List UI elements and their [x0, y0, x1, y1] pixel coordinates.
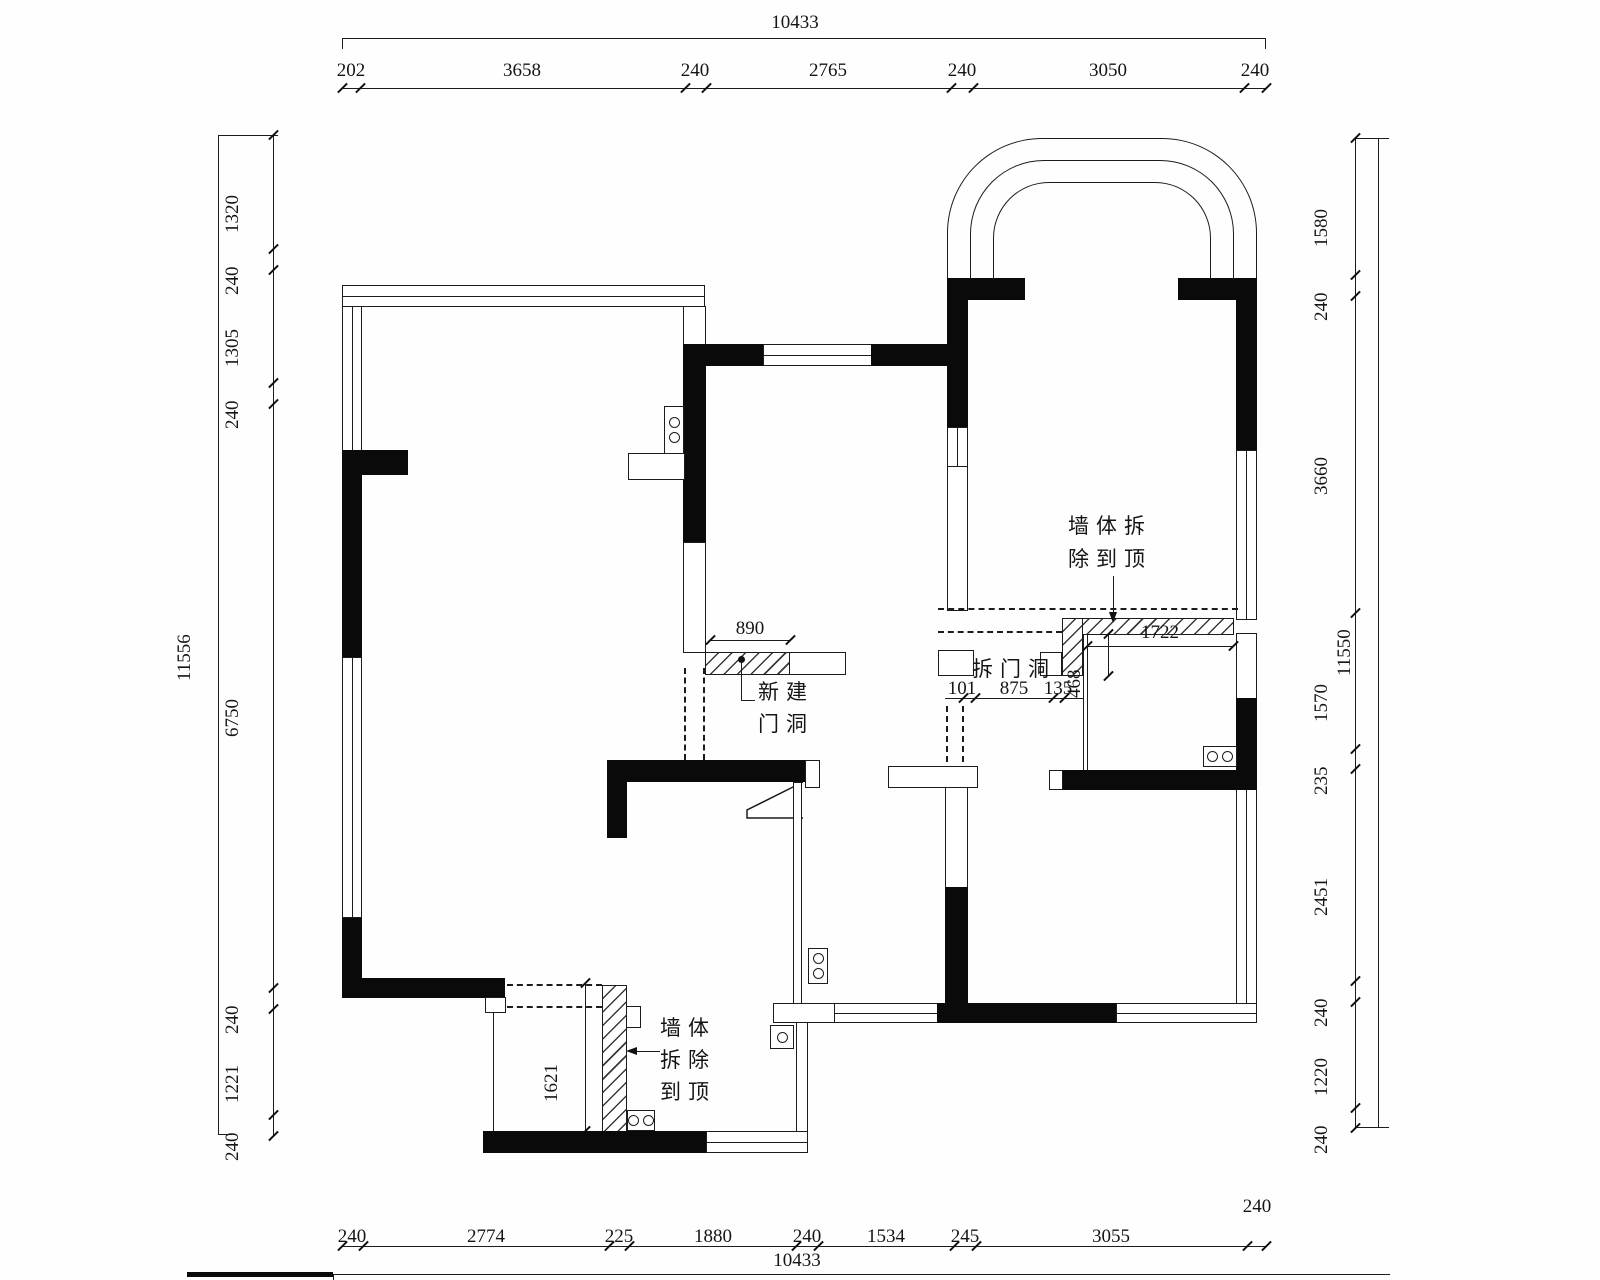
dim-line	[710, 640, 790, 641]
leader-line	[634, 1051, 660, 1052]
dim-top-seg: 240	[681, 60, 710, 82]
dim-right-overall: 11550	[1334, 629, 1356, 676]
leader-line	[741, 700, 755, 701]
sill-box	[773, 1003, 835, 1023]
dim-bottom-seg: 3055	[1092, 1226, 1130, 1248]
dim-right-seg: 1220	[1311, 1058, 1333, 1096]
wall-mid-right	[947, 300, 968, 428]
window-bottom-right	[1116, 1003, 1257, 1023]
removed-wall-dashed	[962, 706, 964, 762]
dim-line	[342, 38, 1266, 39]
wall-partition-thin	[683, 542, 706, 653]
removed-wall-dashed	[684, 668, 686, 760]
hatch-step-notch	[626, 1006, 641, 1028]
wall-bottom-left	[342, 978, 505, 998]
outlet-icon	[1203, 746, 1237, 767]
removed-wall-dashed	[703, 668, 705, 760]
outlet-icon	[627, 1110, 655, 1131]
dim-right-seg: 1570	[1311, 684, 1333, 722]
outlet-icon	[770, 1025, 794, 1049]
dim-line-end	[1265, 38, 1266, 49]
removed-wall-dashed	[938, 608, 1238, 610]
bay-base-left	[947, 278, 1025, 300]
pillar-t-stem-thin	[945, 787, 968, 888]
dim-right-seg: 240	[1311, 293, 1333, 322]
dim-left-seg: 240	[222, 1133, 244, 1162]
door-jamb-piece	[938, 650, 974, 676]
window-top-left	[342, 285, 705, 307]
dim-left-seg: 240	[222, 1006, 244, 1035]
window-left-lower	[342, 657, 362, 918]
wall-end-notch	[485, 997, 506, 1013]
wall-right-thin	[1236, 633, 1257, 699]
dim-line	[342, 1246, 1266, 1247]
dim-right-seg: 2451	[1311, 878, 1333, 916]
dim-left-seg: 240	[222, 267, 244, 296]
bay-window-arc-inner	[993, 182, 1211, 278]
dim-bottom-seg: 1534	[867, 1226, 905, 1248]
wall-center-leg	[607, 782, 627, 838]
removed-wall-dashed	[938, 631, 1062, 633]
dim-left-overall: 11556	[174, 634, 196, 681]
dim-1722: 1722	[1141, 622, 1179, 644]
wall-bottom-mid	[937, 1003, 1117, 1023]
dim-bottom-seg: 1880	[694, 1226, 732, 1248]
dim-door-left: 101	[948, 678, 977, 700]
dim-top-seg: 2765	[809, 60, 847, 82]
annotation-new-door: 门洞	[758, 708, 814, 738]
window-mid-right	[947, 427, 968, 467]
annotation-demolish-top: 墙体拆	[1068, 510, 1152, 540]
pipe-lines	[796, 1022, 808, 1140]
annotation-demolish-bottom: 拆除	[660, 1044, 716, 1074]
leader-line	[1113, 576, 1114, 616]
wall-end-box	[1049, 770, 1063, 790]
counter-box	[628, 453, 685, 480]
annotation-new-door: 新建	[758, 676, 814, 706]
annotation-demolish-top: 除到顶	[1068, 543, 1152, 573]
arrow-down-icon	[1109, 612, 1117, 623]
dim-left-seg: 1320	[222, 195, 244, 233]
removed-wall-dashed	[946, 706, 948, 762]
floorplan-canvas: 10433 202 3658 240 2765 240 3050 240 115…	[0, 0, 1600, 1280]
dim-line-end	[1355, 138, 1389, 139]
demolish-hatch-corner	[1062, 618, 1083, 676]
outlet-icon	[664, 406, 684, 454]
frame-line	[333, 1274, 334, 1280]
dim-right-seg: 240	[1311, 999, 1333, 1028]
dim-1621: 1621	[541, 1064, 563, 1102]
frame-bar	[187, 1272, 333, 1277]
wall-top-middle	[705, 344, 763, 366]
wall-return	[683, 306, 706, 345]
window-left-upper	[342, 306, 362, 451]
dim-line	[342, 88, 1266, 89]
dim-new-door: 890	[736, 618, 765, 640]
dim-bottom-seg: 2774	[467, 1226, 505, 1248]
dim-left-seg: 6750	[222, 699, 244, 737]
dim-bottom-overall: 10433	[773, 1250, 821, 1272]
window-right-upper	[1236, 450, 1257, 620]
removed-wall-dashed	[507, 984, 602, 986]
dim-left-seg: 1305	[222, 329, 244, 367]
dim-line-end	[218, 135, 278, 136]
window-bottom-mid	[834, 1003, 938, 1023]
dim-top-seg: 202	[337, 60, 366, 82]
new-door-hatch	[705, 652, 790, 675]
wall-bath-left	[1083, 634, 1088, 771]
wall-band	[789, 652, 846, 675]
dim-line	[218, 135, 219, 1135]
dim-line-end	[1355, 1127, 1389, 1128]
wall-right-upper	[1236, 300, 1257, 451]
demolish-hatch-wall	[602, 985, 627, 1132]
dim-bottom-seg: 240	[1243, 1196, 1272, 1218]
window-right-lower	[1236, 789, 1257, 1004]
pillar-t-bar	[888, 766, 978, 788]
wall-top-middle2	[871, 344, 947, 366]
bay-base-right	[1178, 278, 1257, 300]
dim-right-seg: 1580	[1311, 209, 1333, 247]
removed-wall-dashed	[507, 1006, 602, 1008]
dim-top-overall: 10433	[771, 12, 819, 34]
dim-line-end	[342, 38, 343, 49]
outlet-icon	[808, 948, 828, 984]
dim-line	[585, 983, 586, 1131]
dim-right-seg: 240	[1311, 1126, 1333, 1155]
wall-below-door	[793, 782, 802, 1004]
wall-bath-bottom	[1062, 770, 1257, 790]
dim-top-seg: 3050	[1089, 60, 1127, 82]
dim-top-seg: 240	[948, 60, 977, 82]
balcony-edge-line	[493, 1012, 494, 1132]
dim-door-width: 875	[1000, 678, 1029, 700]
wall-bottom-balcony	[483, 1131, 707, 1153]
window-bottom-balcony	[706, 1131, 808, 1153]
frame-line	[333, 1274, 1390, 1275]
wall-left	[342, 475, 362, 658]
leader-line	[741, 661, 742, 701]
wall-partition	[683, 344, 706, 543]
wall-left-stub	[342, 450, 408, 475]
wall-mid-right-thin	[947, 466, 968, 611]
dim-left-seg: 1221	[222, 1065, 244, 1103]
annotation-demolish-bottom: 到顶	[660, 1076, 716, 1106]
dim-line	[1108, 634, 1109, 676]
annotation-demolish-bottom: 墙体	[660, 1012, 716, 1042]
dim-left-seg: 240	[222, 401, 244, 430]
dim-right-seg: 235	[1311, 767, 1333, 796]
dim-line	[1378, 138, 1379, 1128]
arrow-left-icon	[626, 1047, 637, 1055]
dim-top-seg: 3658	[503, 60, 541, 82]
dim-right-seg: 3660	[1311, 457, 1333, 495]
dim-468: 468	[1064, 670, 1086, 699]
window-top-middle	[763, 344, 872, 366]
dim-top-seg: 240	[1241, 60, 1270, 82]
